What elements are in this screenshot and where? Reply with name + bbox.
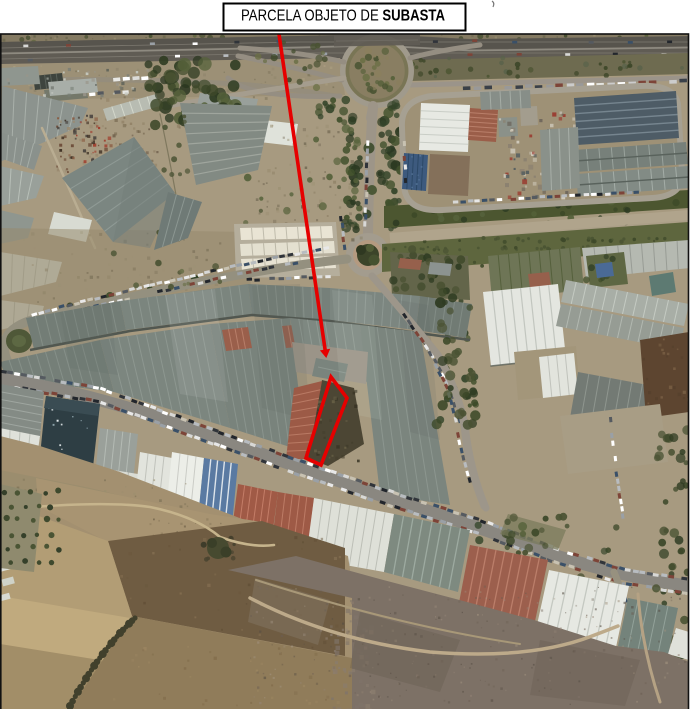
svg-text:PARCELA OBJETO DE SUBASTA: PARCELA OBJETO DE SUBASTA — [241, 8, 445, 25]
